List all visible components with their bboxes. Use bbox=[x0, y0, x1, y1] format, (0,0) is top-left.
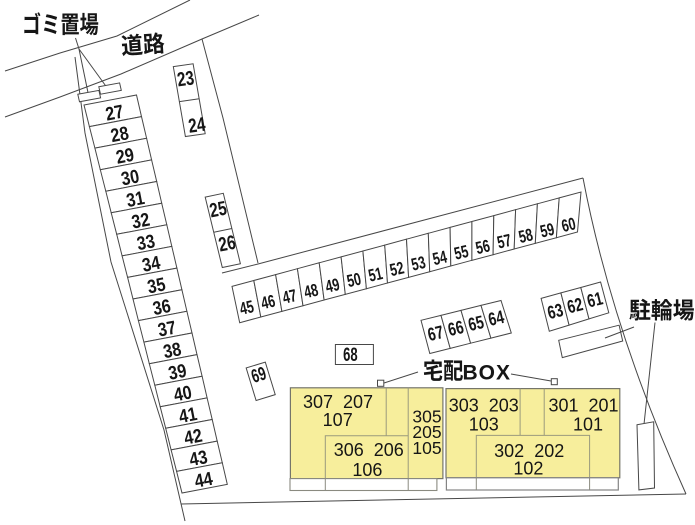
svg-text:105: 105 bbox=[412, 438, 441, 458]
svg-text:106: 106 bbox=[352, 460, 382, 480]
svg-text:68: 68 bbox=[343, 345, 358, 366]
svg-text:303 203: 303 203 bbox=[449, 396, 519, 416]
svg-text:BOX: BOX bbox=[463, 361, 512, 384]
svg-text:103: 103 bbox=[469, 415, 499, 435]
svg-text:107: 107 bbox=[323, 410, 353, 430]
svg-text:102: 102 bbox=[513, 458, 543, 478]
svg-text:101: 101 bbox=[573, 415, 603, 435]
svg-text:23: 23 bbox=[176, 67, 196, 91]
svg-text:306 206: 306 206 bbox=[334, 440, 404, 460]
svg-text:307 207: 307 207 bbox=[303, 392, 373, 412]
svg-text:301 201: 301 201 bbox=[548, 396, 618, 416]
